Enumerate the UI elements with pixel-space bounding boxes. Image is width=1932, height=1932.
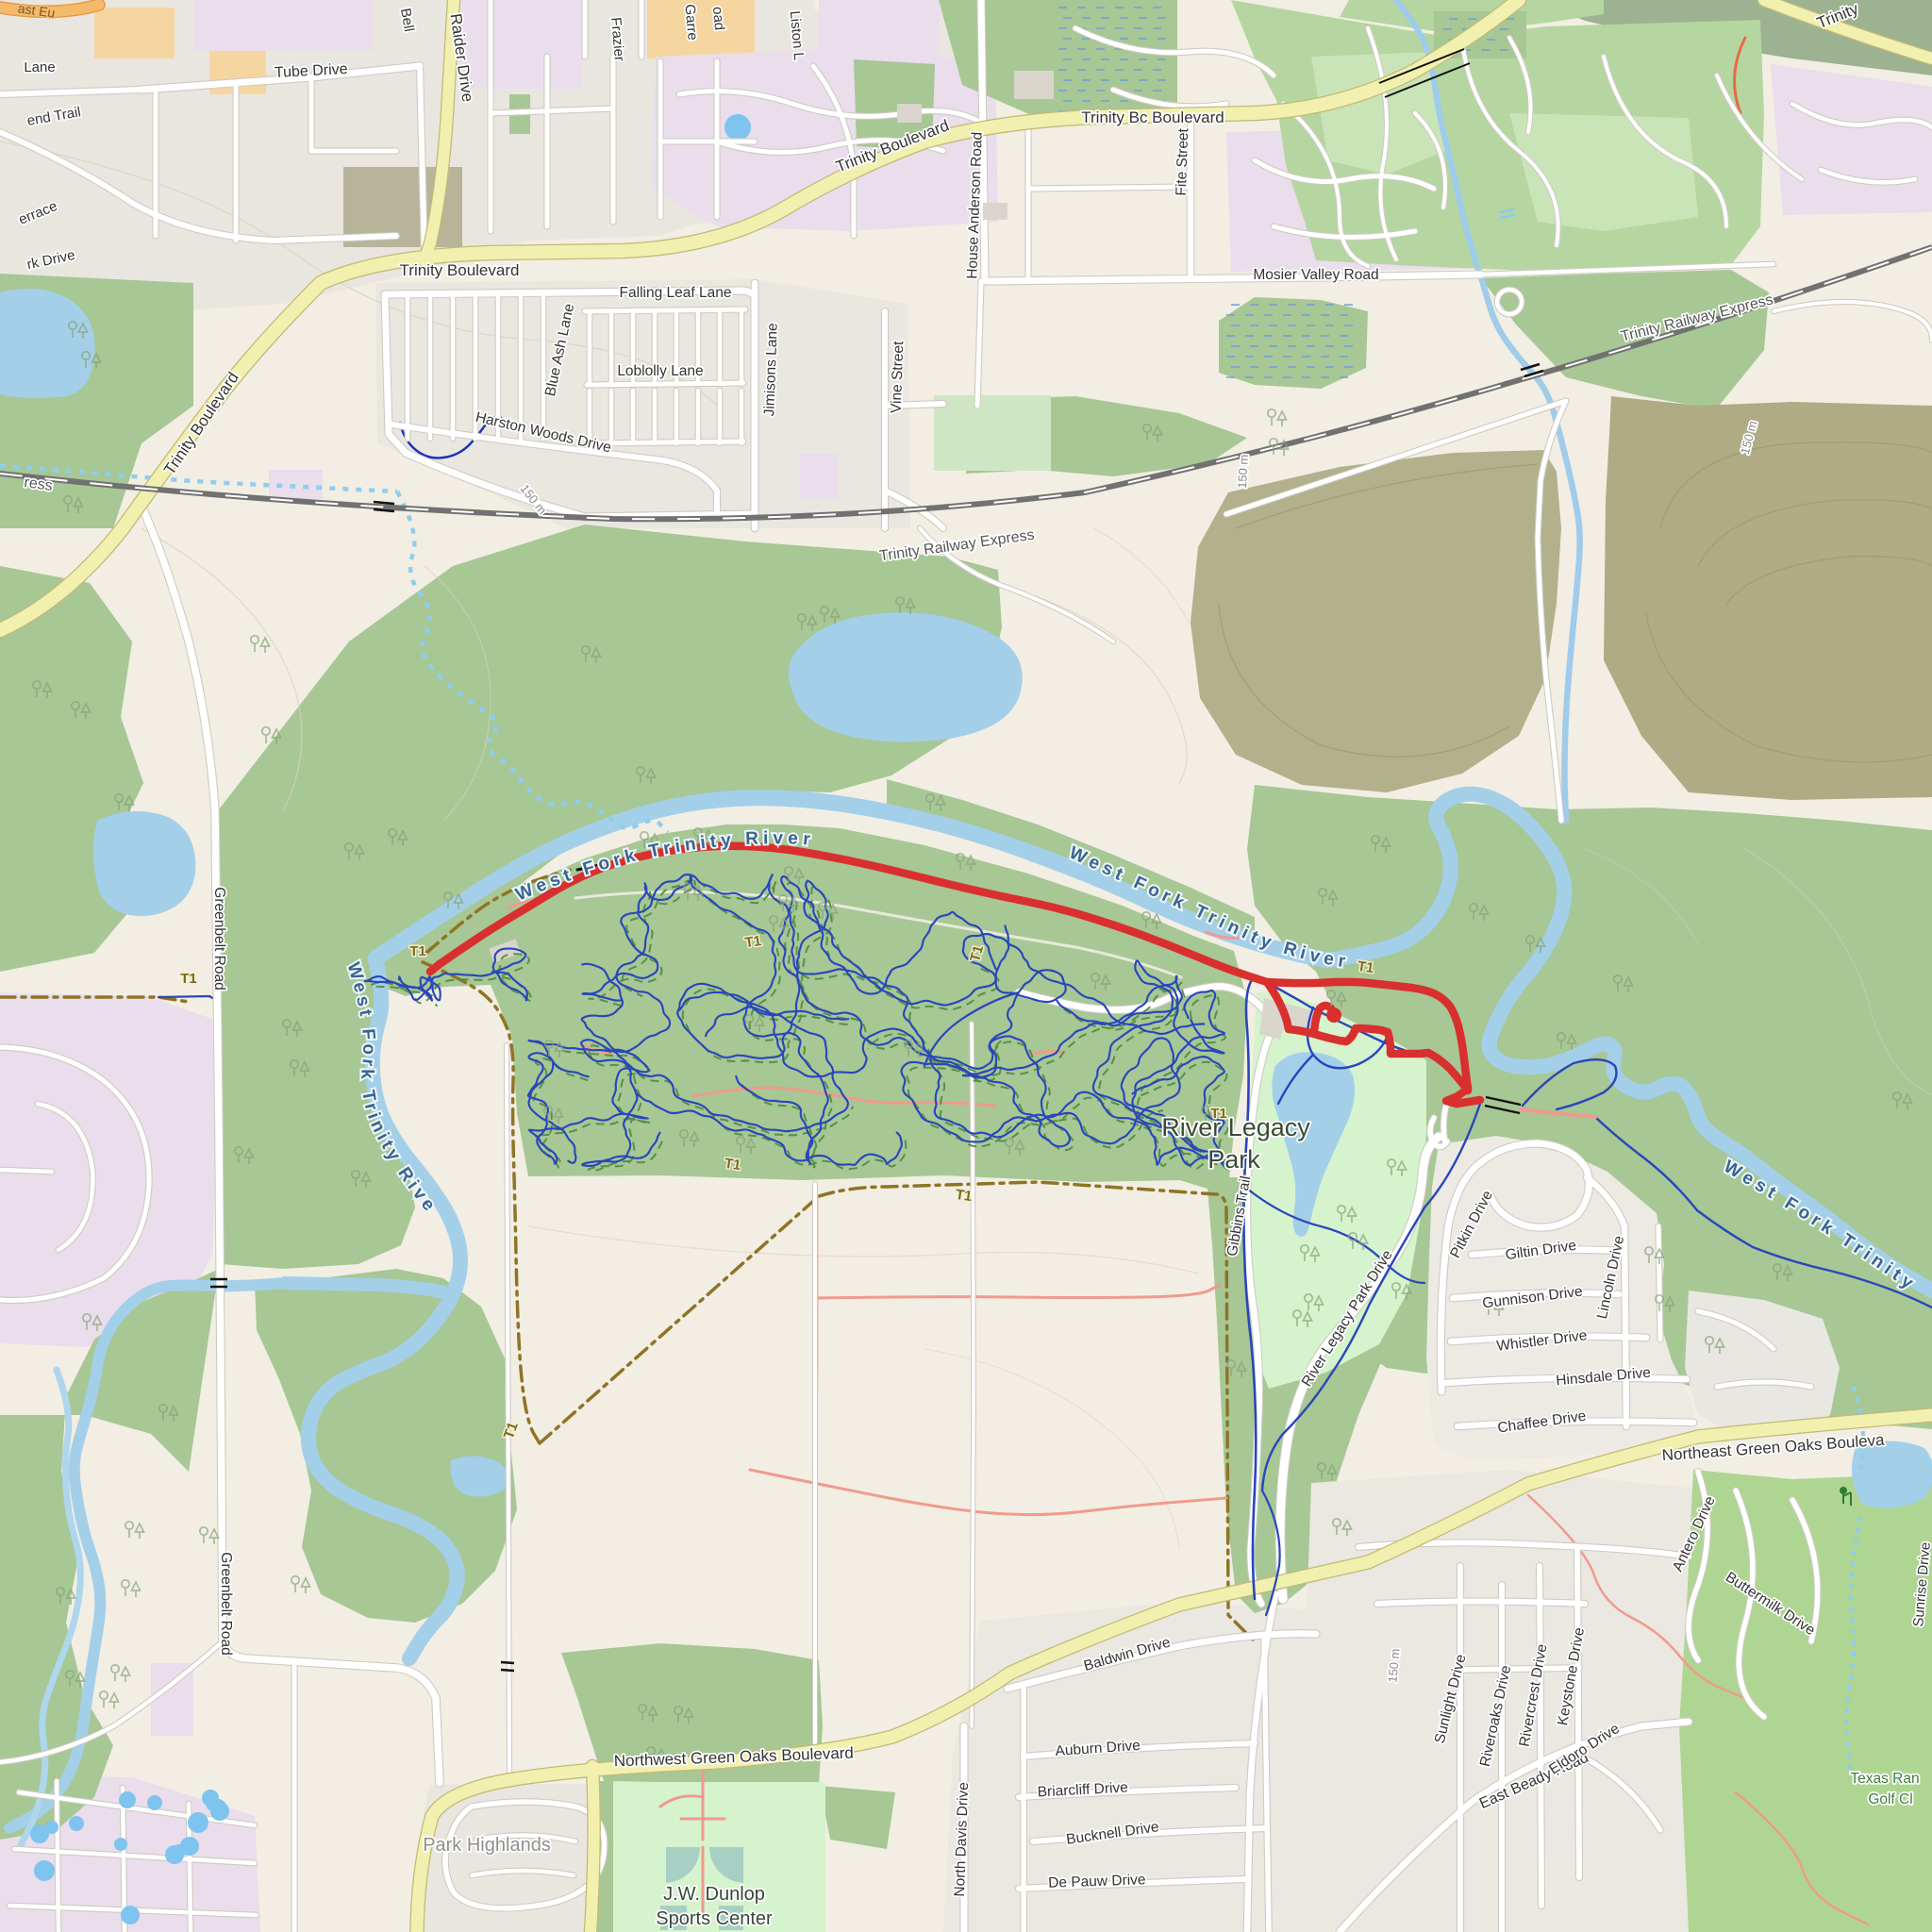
svg-text:Greenbelt Road: Greenbelt Road bbox=[218, 1552, 234, 1655]
svg-text:Trinity Boulevard: Trinity Boulevard bbox=[400, 261, 520, 279]
svg-text:Sports Center: Sports Center bbox=[656, 1908, 773, 1929]
svg-text:T1: T1 bbox=[409, 943, 426, 959]
svg-text:T1: T1 bbox=[180, 971, 197, 987]
svg-text:T1: T1 bbox=[955, 1187, 974, 1205]
svg-text:Park Highlands: Park Highlands bbox=[423, 1835, 551, 1856]
svg-text:Falling Leaf Lane: Falling Leaf Lane bbox=[620, 285, 732, 301]
svg-text:T1: T1 bbox=[1357, 958, 1375, 976]
svg-text:Vine Street: Vine Street bbox=[889, 341, 908, 414]
svg-text:Garre: Garre bbox=[681, 4, 700, 42]
svg-text:Trinity Bc Boulevard: Trinity Bc Boulevard bbox=[1081, 108, 1224, 126]
svg-text:Mosier Valley Road: Mosier Valley Road bbox=[1253, 267, 1378, 283]
svg-text:Golf Cl: Golf Cl bbox=[1868, 1791, 1912, 1807]
svg-text:De Pauw Drive: De Pauw Drive bbox=[1048, 1872, 1146, 1891]
svg-text:Loblolly Lane: Loblolly Lane bbox=[617, 363, 703, 379]
svg-text:150 m: 150 m bbox=[1385, 1648, 1402, 1683]
svg-text:Fite Street: Fite Street bbox=[1174, 127, 1192, 196]
svg-text:T1: T1 bbox=[744, 933, 763, 951]
svg-text:150 m: 150 m bbox=[1235, 454, 1251, 489]
svg-text:River Legacy: River Legacy bbox=[1161, 1113, 1310, 1141]
svg-text:Greenbelt Road: Greenbelt Road bbox=[211, 887, 227, 990]
svg-text:Texas Ran: Texas Ran bbox=[1850, 1771, 1919, 1787]
svg-text:Park: Park bbox=[1207, 1145, 1260, 1174]
svg-text:Jimisons Lane: Jimisons Lane bbox=[761, 323, 780, 417]
svg-text:T1: T1 bbox=[724, 1156, 742, 1174]
svg-text:J.W. Dunlop: J.W. Dunlop bbox=[663, 1884, 765, 1905]
svg-text:Lane: Lane bbox=[24, 59, 55, 75]
svg-text:oad: oad bbox=[709, 6, 727, 30]
